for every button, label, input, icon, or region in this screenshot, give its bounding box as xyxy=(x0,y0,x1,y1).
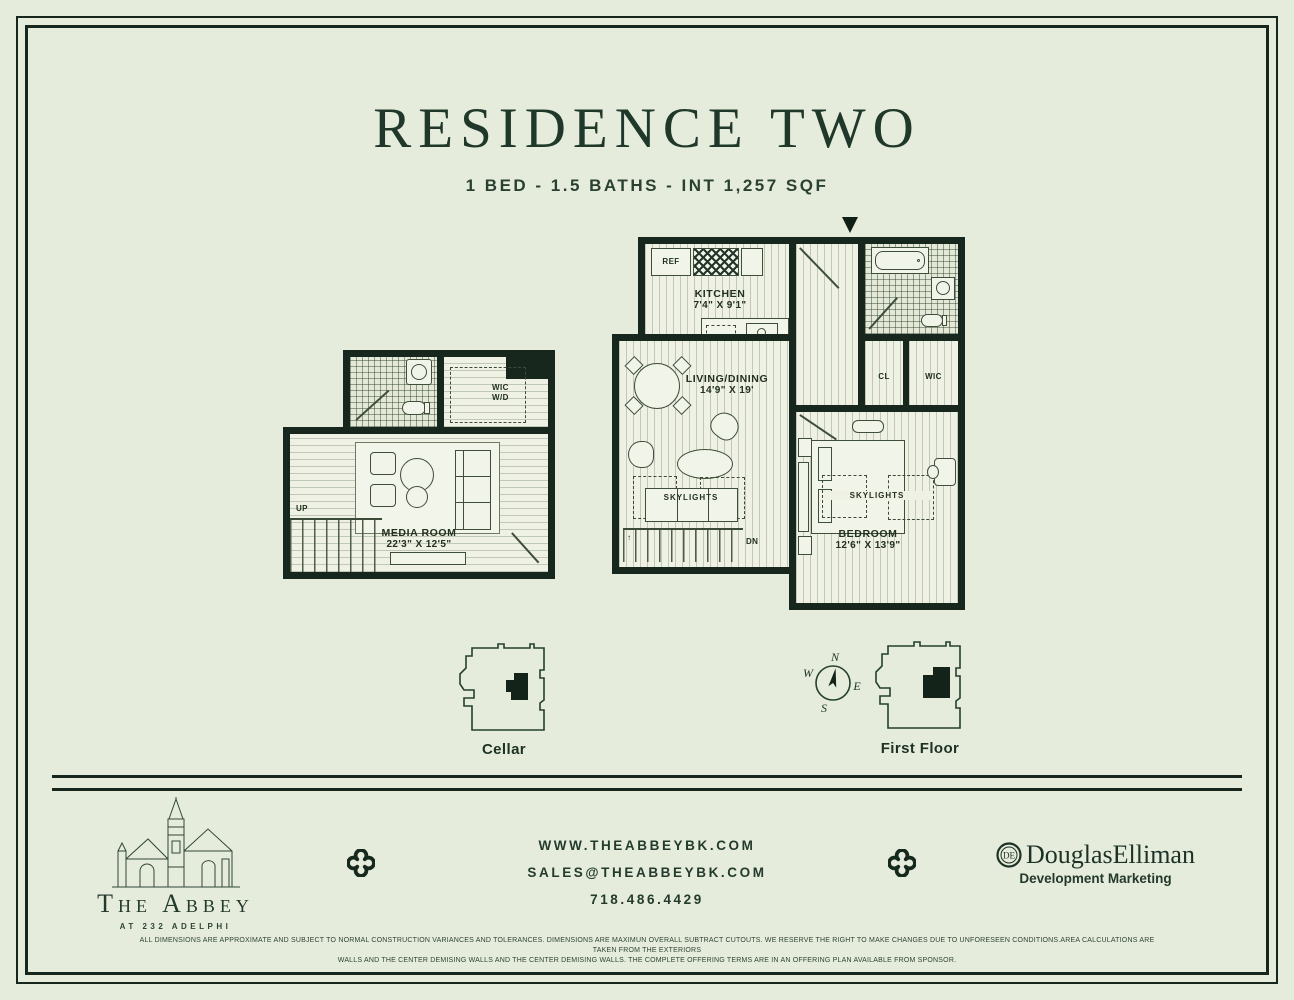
living-dining: LIVING/DINING 14'9" X 19' SKYLIGHTS DN ↑ xyxy=(612,334,796,574)
website-text: WWW.THEABBEYBK.COM xyxy=(447,838,847,853)
stove xyxy=(693,248,739,276)
cellar-media-room: UP MEDIA ROOM 22'3" X 12'5" xyxy=(283,427,555,579)
armchair xyxy=(706,407,744,445)
divider-rule-bottom xyxy=(52,788,1242,791)
toilet-tank xyxy=(424,402,430,414)
bathroom xyxy=(858,237,965,341)
stair-direction-arrow: ↑ xyxy=(627,533,631,542)
media-room-label: MEDIA ROOM 22'3" X 12'5" xyxy=(319,527,519,551)
disclaimer-line-2: WALLS AND THE CENTER DEMISING WALLS AND … xyxy=(127,956,1167,966)
phone-text: 718.486.4429 xyxy=(447,892,847,907)
chair xyxy=(370,484,396,507)
armchair xyxy=(628,441,654,468)
dn-label: DN xyxy=(746,537,758,546)
quatrefoil-icon xyxy=(888,849,916,877)
coffee-table xyxy=(677,449,733,479)
quatrefoil-icon xyxy=(347,849,375,877)
compass-icon: N W E S xyxy=(798,644,868,720)
counter xyxy=(741,248,763,276)
svg-text:E: E xyxy=(852,679,861,693)
cellar-key-label: Cellar xyxy=(452,741,556,758)
contact-block: WWW.THEABBEYBK.COM SALES@THEABBEYBK.COM … xyxy=(447,838,847,919)
disclaimer-line-1: ALL DIMENSIONS ARE APPROXIMATE AND SUBJE… xyxy=(127,936,1167,956)
abbey-wordmark: The Abbey xyxy=(88,889,263,919)
abbey-tagline: AT 232 ADELPHI xyxy=(88,922,263,931)
douglas-elliman-logo: DE DouglasElliman Development Marketing xyxy=(988,840,1203,886)
bedroom-label: BEDROOM 12'6" X 13'9" xyxy=(798,528,938,552)
sink xyxy=(406,359,432,385)
first-floor-key-plan xyxy=(868,638,972,738)
entry-door-swing xyxy=(799,247,839,288)
first-floor-floorplan: REF KITCHEN 7'4" X 9'1" DW xyxy=(612,237,965,610)
page-subtitle: 1 BED - 1.5 BATHS - INT 1,257 SQF xyxy=(0,176,1294,196)
nightstand xyxy=(798,438,812,457)
email-text: SALES@THEABBEYBK.COM xyxy=(447,865,847,880)
abbey-logo: The Abbey AT 232 ADELPHI xyxy=(88,797,263,931)
disclaimer: ALL DIMENSIONS ARE APPROXIMATE AND SUBJE… xyxy=(127,936,1167,966)
de-name: DouglasElliman xyxy=(1026,840,1195,870)
chair xyxy=(370,452,396,475)
de-monogram-icon: DE xyxy=(996,842,1022,868)
cellar-floorplan: WIC W/D UP MEDIA ROOM 22'3" X 12'5" xyxy=(283,350,555,579)
wic-wd-label: WIC W/D xyxy=(492,383,509,403)
page-title: RESIDENCE TWO xyxy=(0,96,1294,161)
up-label: UP xyxy=(296,504,308,513)
door-swing xyxy=(355,390,389,421)
ottoman xyxy=(406,486,428,508)
door-swing xyxy=(868,297,897,329)
stairs-down xyxy=(623,528,743,562)
cellar-bathroom xyxy=(343,350,444,434)
toilet xyxy=(402,401,426,415)
skylights-label: SKYLIGHTS xyxy=(824,491,930,500)
de-division: Development Marketing xyxy=(988,871,1203,886)
toilet-tank xyxy=(942,315,947,326)
bathtub xyxy=(871,247,929,274)
first-floor-key-label: First Floor xyxy=(862,740,978,757)
abbey-church-illustration xyxy=(106,797,246,889)
bedroom: SKYLIGHTS BEDROOM 12'6" X 13'9" xyxy=(789,405,965,610)
living-label: LIVING/DINING 14'9" X 19' xyxy=(671,373,783,397)
entry-arrow-icon xyxy=(842,217,858,233)
toilet xyxy=(921,314,943,327)
headboard xyxy=(798,462,809,532)
sofa xyxy=(455,450,491,530)
refrigerator: REF xyxy=(651,248,691,276)
closet-outline xyxy=(450,367,526,423)
svg-text:S: S xyxy=(821,701,827,715)
door-swing xyxy=(800,414,837,440)
cellar-wic: WIC W/D xyxy=(437,350,555,434)
skylights-label: SKYLIGHTS xyxy=(656,493,726,502)
desk-chair xyxy=(927,465,939,479)
cellar-key-plan xyxy=(452,640,556,740)
svg-text:N: N xyxy=(830,650,840,664)
svg-text:DE: DE xyxy=(1003,851,1015,861)
media-console xyxy=(390,552,466,565)
bench xyxy=(852,420,884,433)
divider-rule-top xyxy=(52,775,1242,778)
sink xyxy=(931,277,955,300)
kitchen-label: KITCHEN 7'4" X 9'1" xyxy=(665,288,775,312)
entry-hall xyxy=(789,237,865,412)
svg-text:W: W xyxy=(803,666,814,680)
